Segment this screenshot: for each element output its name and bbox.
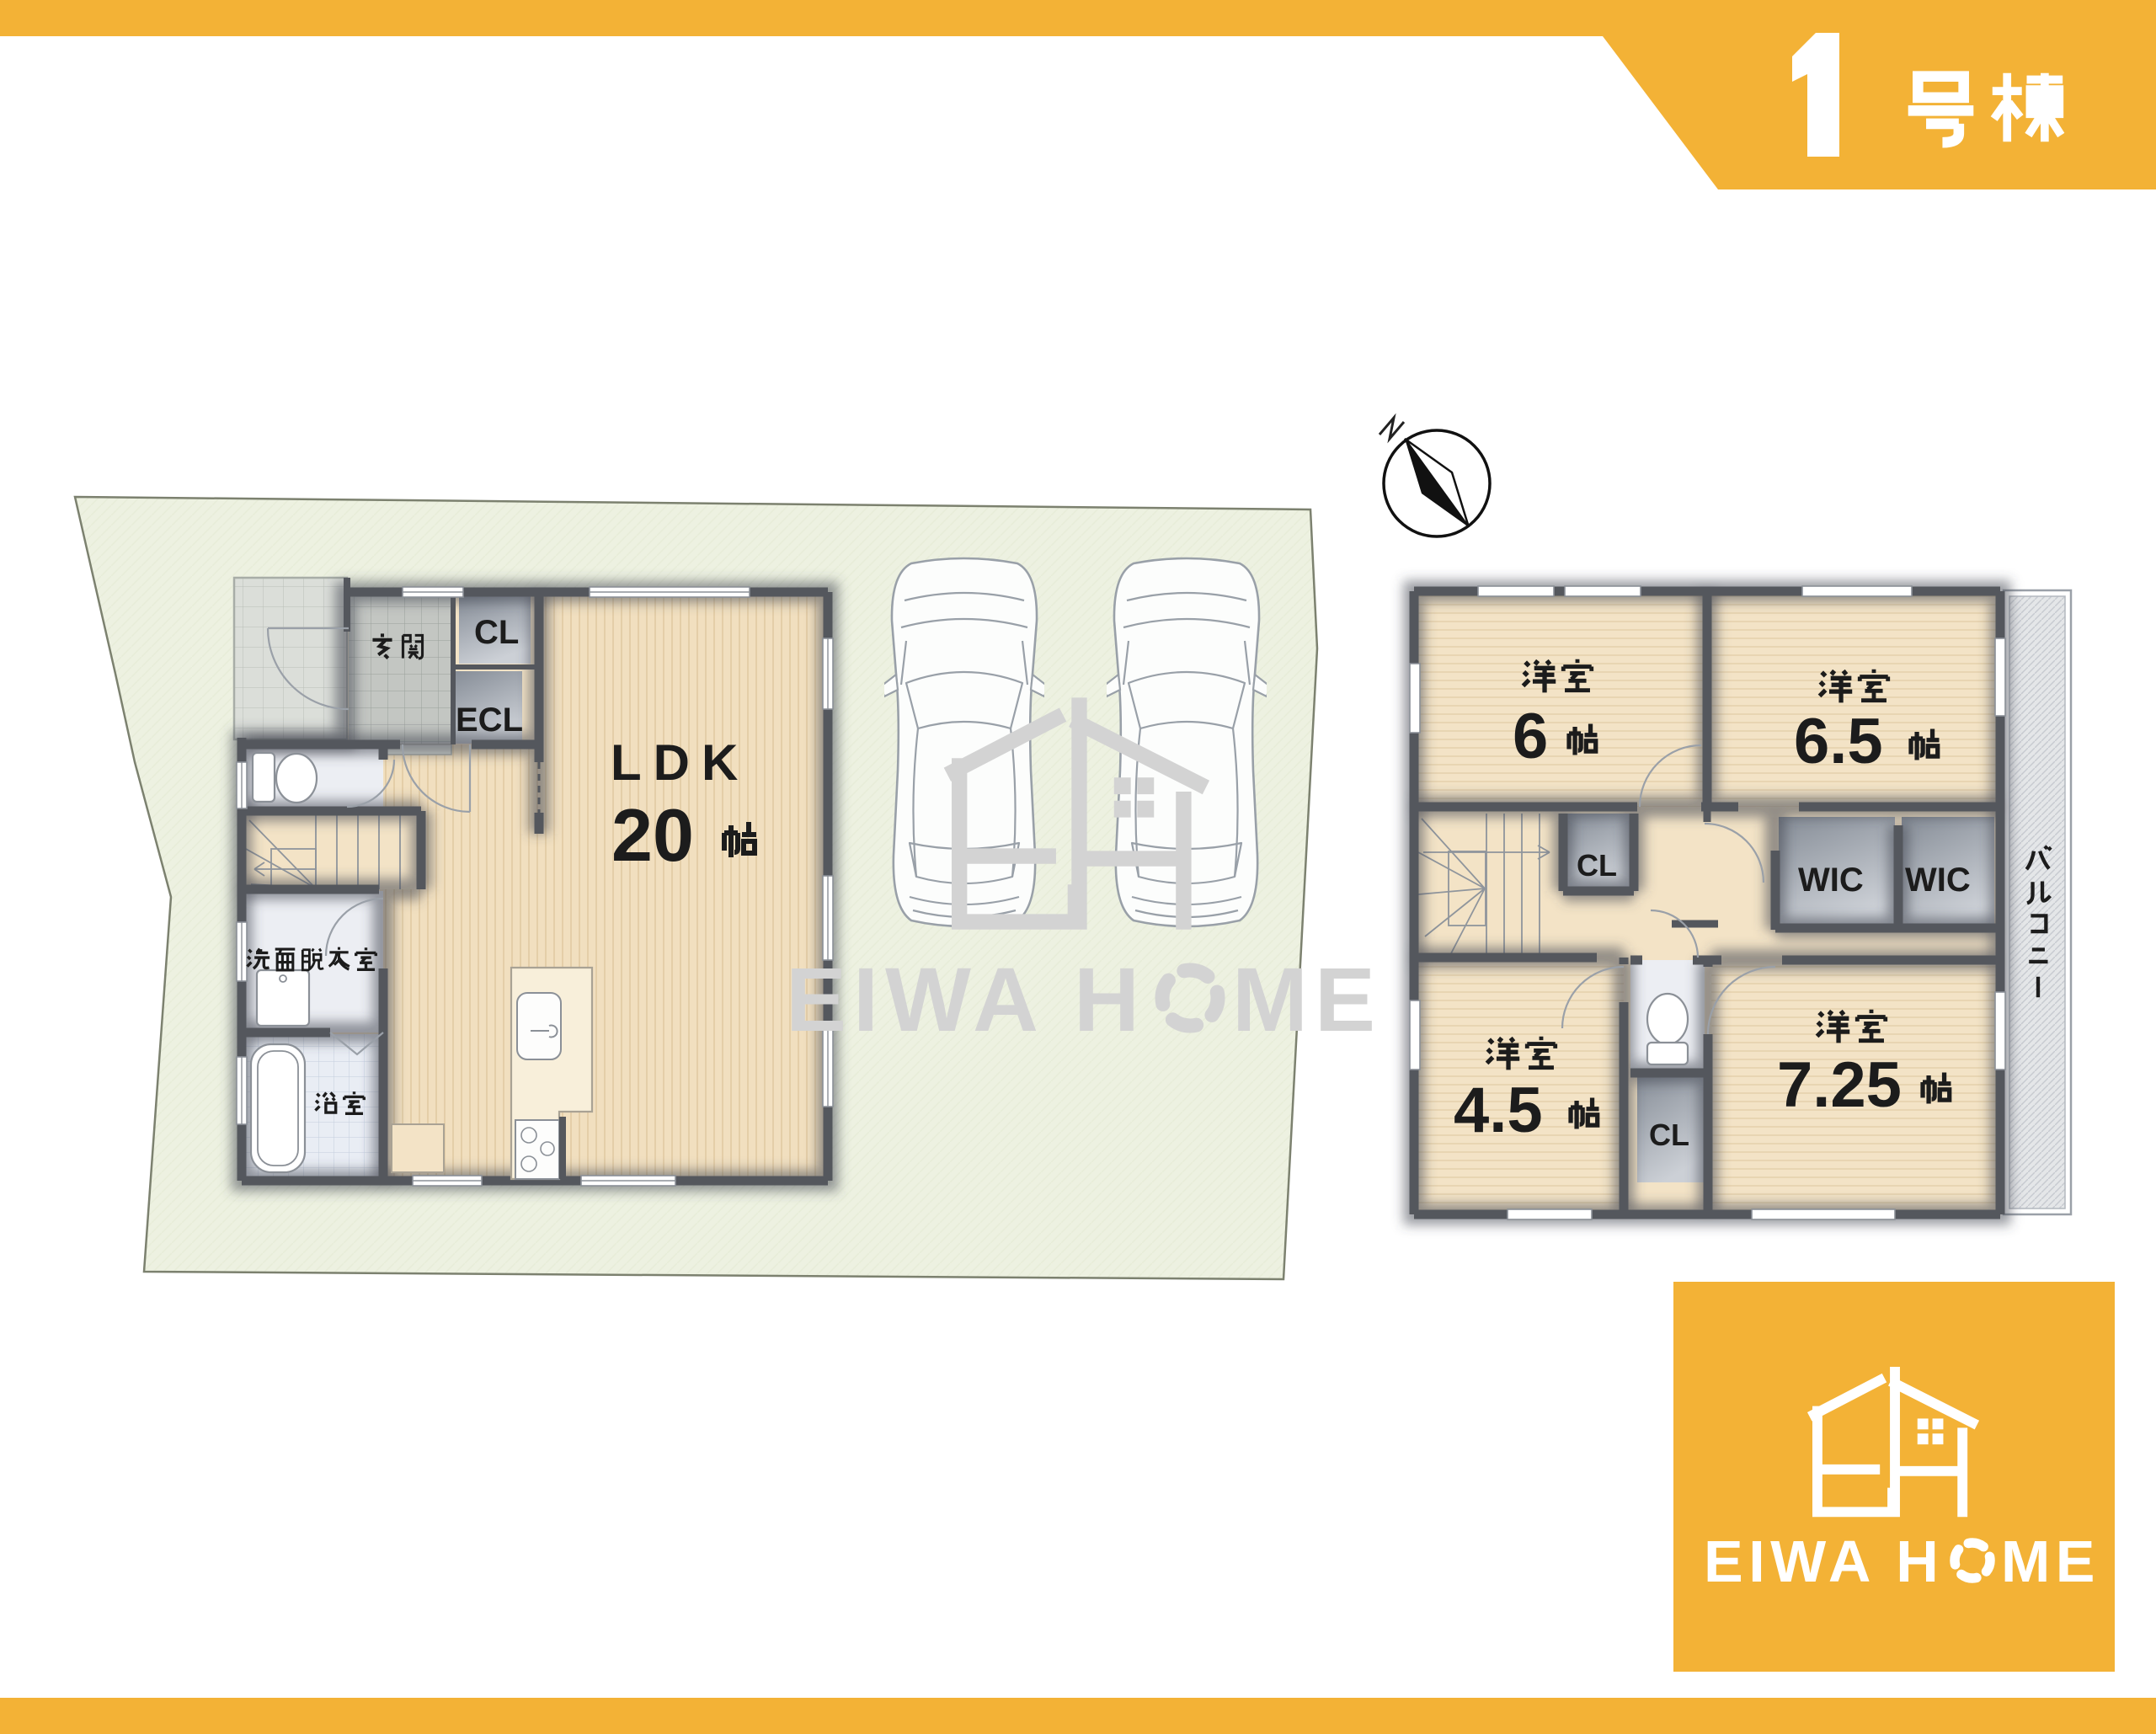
svg-text:CL: CL [1649, 1118, 1689, 1152]
svg-text:ME: ME [1232, 948, 1382, 1050]
svg-text:4.5: 4.5 [1454, 1075, 1543, 1146]
svg-text:ECL: ECL [456, 702, 523, 739]
svg-text:EIWA H: EIWA H [786, 948, 1146, 1050]
svg-text:ME: ME [2001, 1529, 2100, 1594]
svg-text:WIC: WIC [1905, 862, 1971, 899]
svg-text:20: 20 [611, 793, 694, 877]
svg-text:CL: CL [1577, 848, 1617, 883]
svg-text:EIWA H: EIWA H [1704, 1529, 1944, 1594]
svg-text:CL: CL [474, 614, 519, 651]
svg-text:6: 6 [1513, 701, 1548, 772]
svg-text:7.25: 7.25 [1777, 1049, 1902, 1121]
svg-text:6.5: 6.5 [1794, 706, 1883, 777]
svg-text:LDK: LDK [611, 734, 750, 791]
svg-text:WIC: WIC [1798, 862, 1864, 899]
